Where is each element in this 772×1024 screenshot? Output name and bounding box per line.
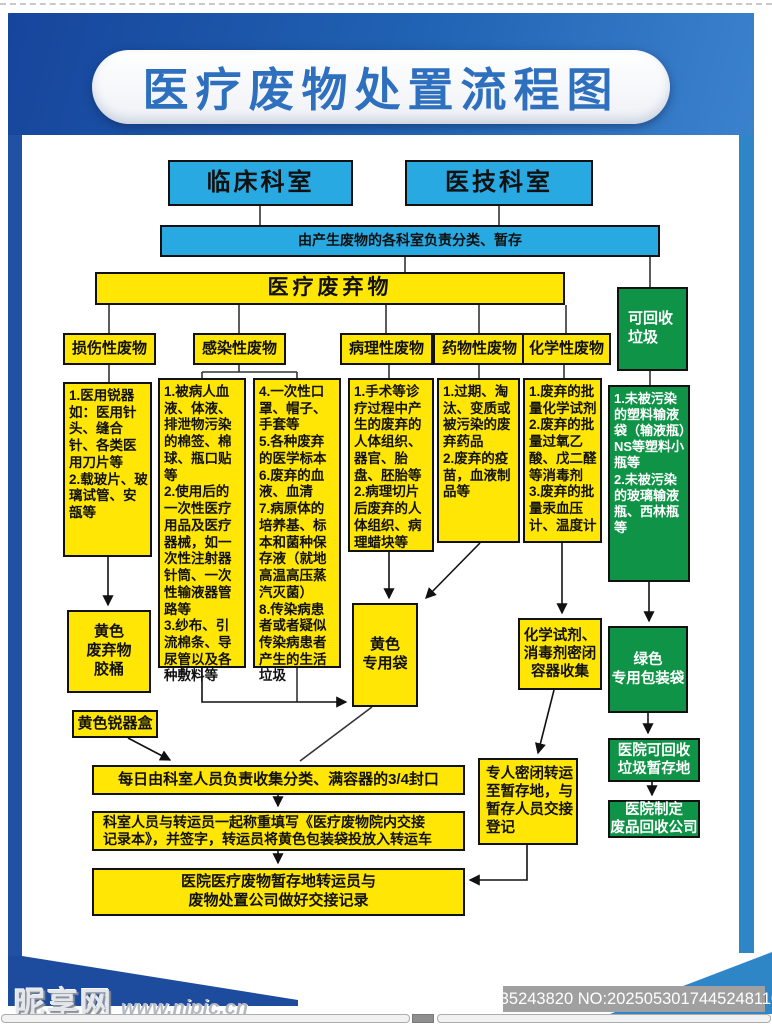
yellow-sharps-container-box: 黄色锐器盒: [72, 710, 158, 738]
recycling-company-box: 医院制定 废品回收公司: [608, 800, 700, 838]
category-pathological-waste: 病理性废物: [340, 333, 433, 365]
poster-header: 医疗废物处置流程图: [8, 13, 754, 135]
horizontal-scrollbar-track-right[interactable]: [437, 1014, 771, 1023]
clinical-dept-box: 临床科室: [168, 160, 353, 206]
page-title: 医疗废物处置流程图: [143, 54, 620, 120]
poster-page: 医疗废物处置流程图: [0, 0, 772, 1024]
medical-waste-bar: 医疗废弃物: [95, 272, 565, 305]
detail-infectious-waste-2: 4.一次性口罩、帽子、手套等 5.各种废弃的医学标本 6.废弃的血液、血清 7.…: [253, 378, 341, 668]
detail-recyclable-waste: 1.未被污染的塑料输液袋（输液瓶）NS等塑料小瓶等 2.未被污染的玻璃输液瓶、西…: [608, 385, 690, 582]
yellow-waste-bucket-box: 黄色 废弃物 胶桶: [67, 610, 151, 693]
yellow-special-bag-box: 黄色 专用袋: [352, 603, 418, 707]
handover-record-step-box: 医院医疗废物暂存地转运员与 废物处置公司做好交接记录: [92, 868, 465, 916]
weigh-and-record-step-box: 科室人员与转运员一起称重填写《医疗废物院内交接 记录本》，并签字，转运员将黄色包…: [92, 811, 465, 851]
recyclable-waste-box: 可回收 垃圾: [617, 287, 688, 371]
left-border-stripe: [8, 13, 22, 963]
daily-collection-step-box: 每日由科室人员负责收集分类、满容器的3/4封口: [92, 765, 465, 795]
detail-chemical-waste: 1.废弃的批量化学试剂 2.废弃的批量过氧乙酸、戊二醛等消毒剂 3.废弃的批量汞…: [523, 378, 602, 543]
category-infectious-waste: 感染性废物: [193, 333, 286, 365]
selection-dashed-line: [0, 3, 772, 5]
title-pill: 医疗废物处置流程图: [92, 50, 670, 124]
category-pharmaceutical-waste: 药物性废物: [433, 333, 526, 365]
detail-pharmaceutical-waste: 1.过期、淘汰、变质或被污染的废弃药品 2.废弃的疫苗，血液制品等: [437, 378, 520, 543]
chemical-sealed-container-box: 化学试剂、 消毒剂密闭 容器收集: [518, 618, 602, 690]
category-chemical-waste: 化学性废物: [522, 333, 611, 365]
detail-pathological-waste: 1.手术等诊疗过程中产生的废弃的人体组织、器官、胎盘、胚胎等 2.病理切片后废弃…: [348, 378, 434, 552]
horizontal-scrollbar-thumb[interactable]: [412, 1014, 434, 1023]
detail-sharps-waste: 1.医用锐器如：医用针头、缝合针、各类医用刀片等 2.载玻片、玻璃试管、安瓿等: [63, 382, 152, 557]
hospital-recyclable-storage-box: 医院可回收 垃圾暂存地: [608, 738, 700, 782]
right-border-stripe: [739, 13, 754, 953]
green-packaging-bag-box: 绿色 专用包装袋: [608, 626, 688, 713]
detail-infectious-waste-1: 1.被病人血液、体液、排泄物污染的棉签、棉球、瓶口贴等 2.使用后的一次性医疗用…: [158, 378, 246, 668]
category-sharps-waste: 损伤性废物: [63, 333, 156, 365]
horizontal-scrollbar-track-left[interactable]: [1, 1014, 410, 1023]
medtech-dept-box: 医技科室: [405, 160, 593, 206]
image-id-badge: ID:35243820 NO:20250530174452481101: [503, 986, 765, 1012]
classify-storage-bar: 由产生废物的各科室负责分类、暂存: [160, 225, 660, 257]
sealed-transfer-step-box: 专人密闭转运 至暂存地，与 暂存人员交接 登记: [478, 758, 578, 845]
